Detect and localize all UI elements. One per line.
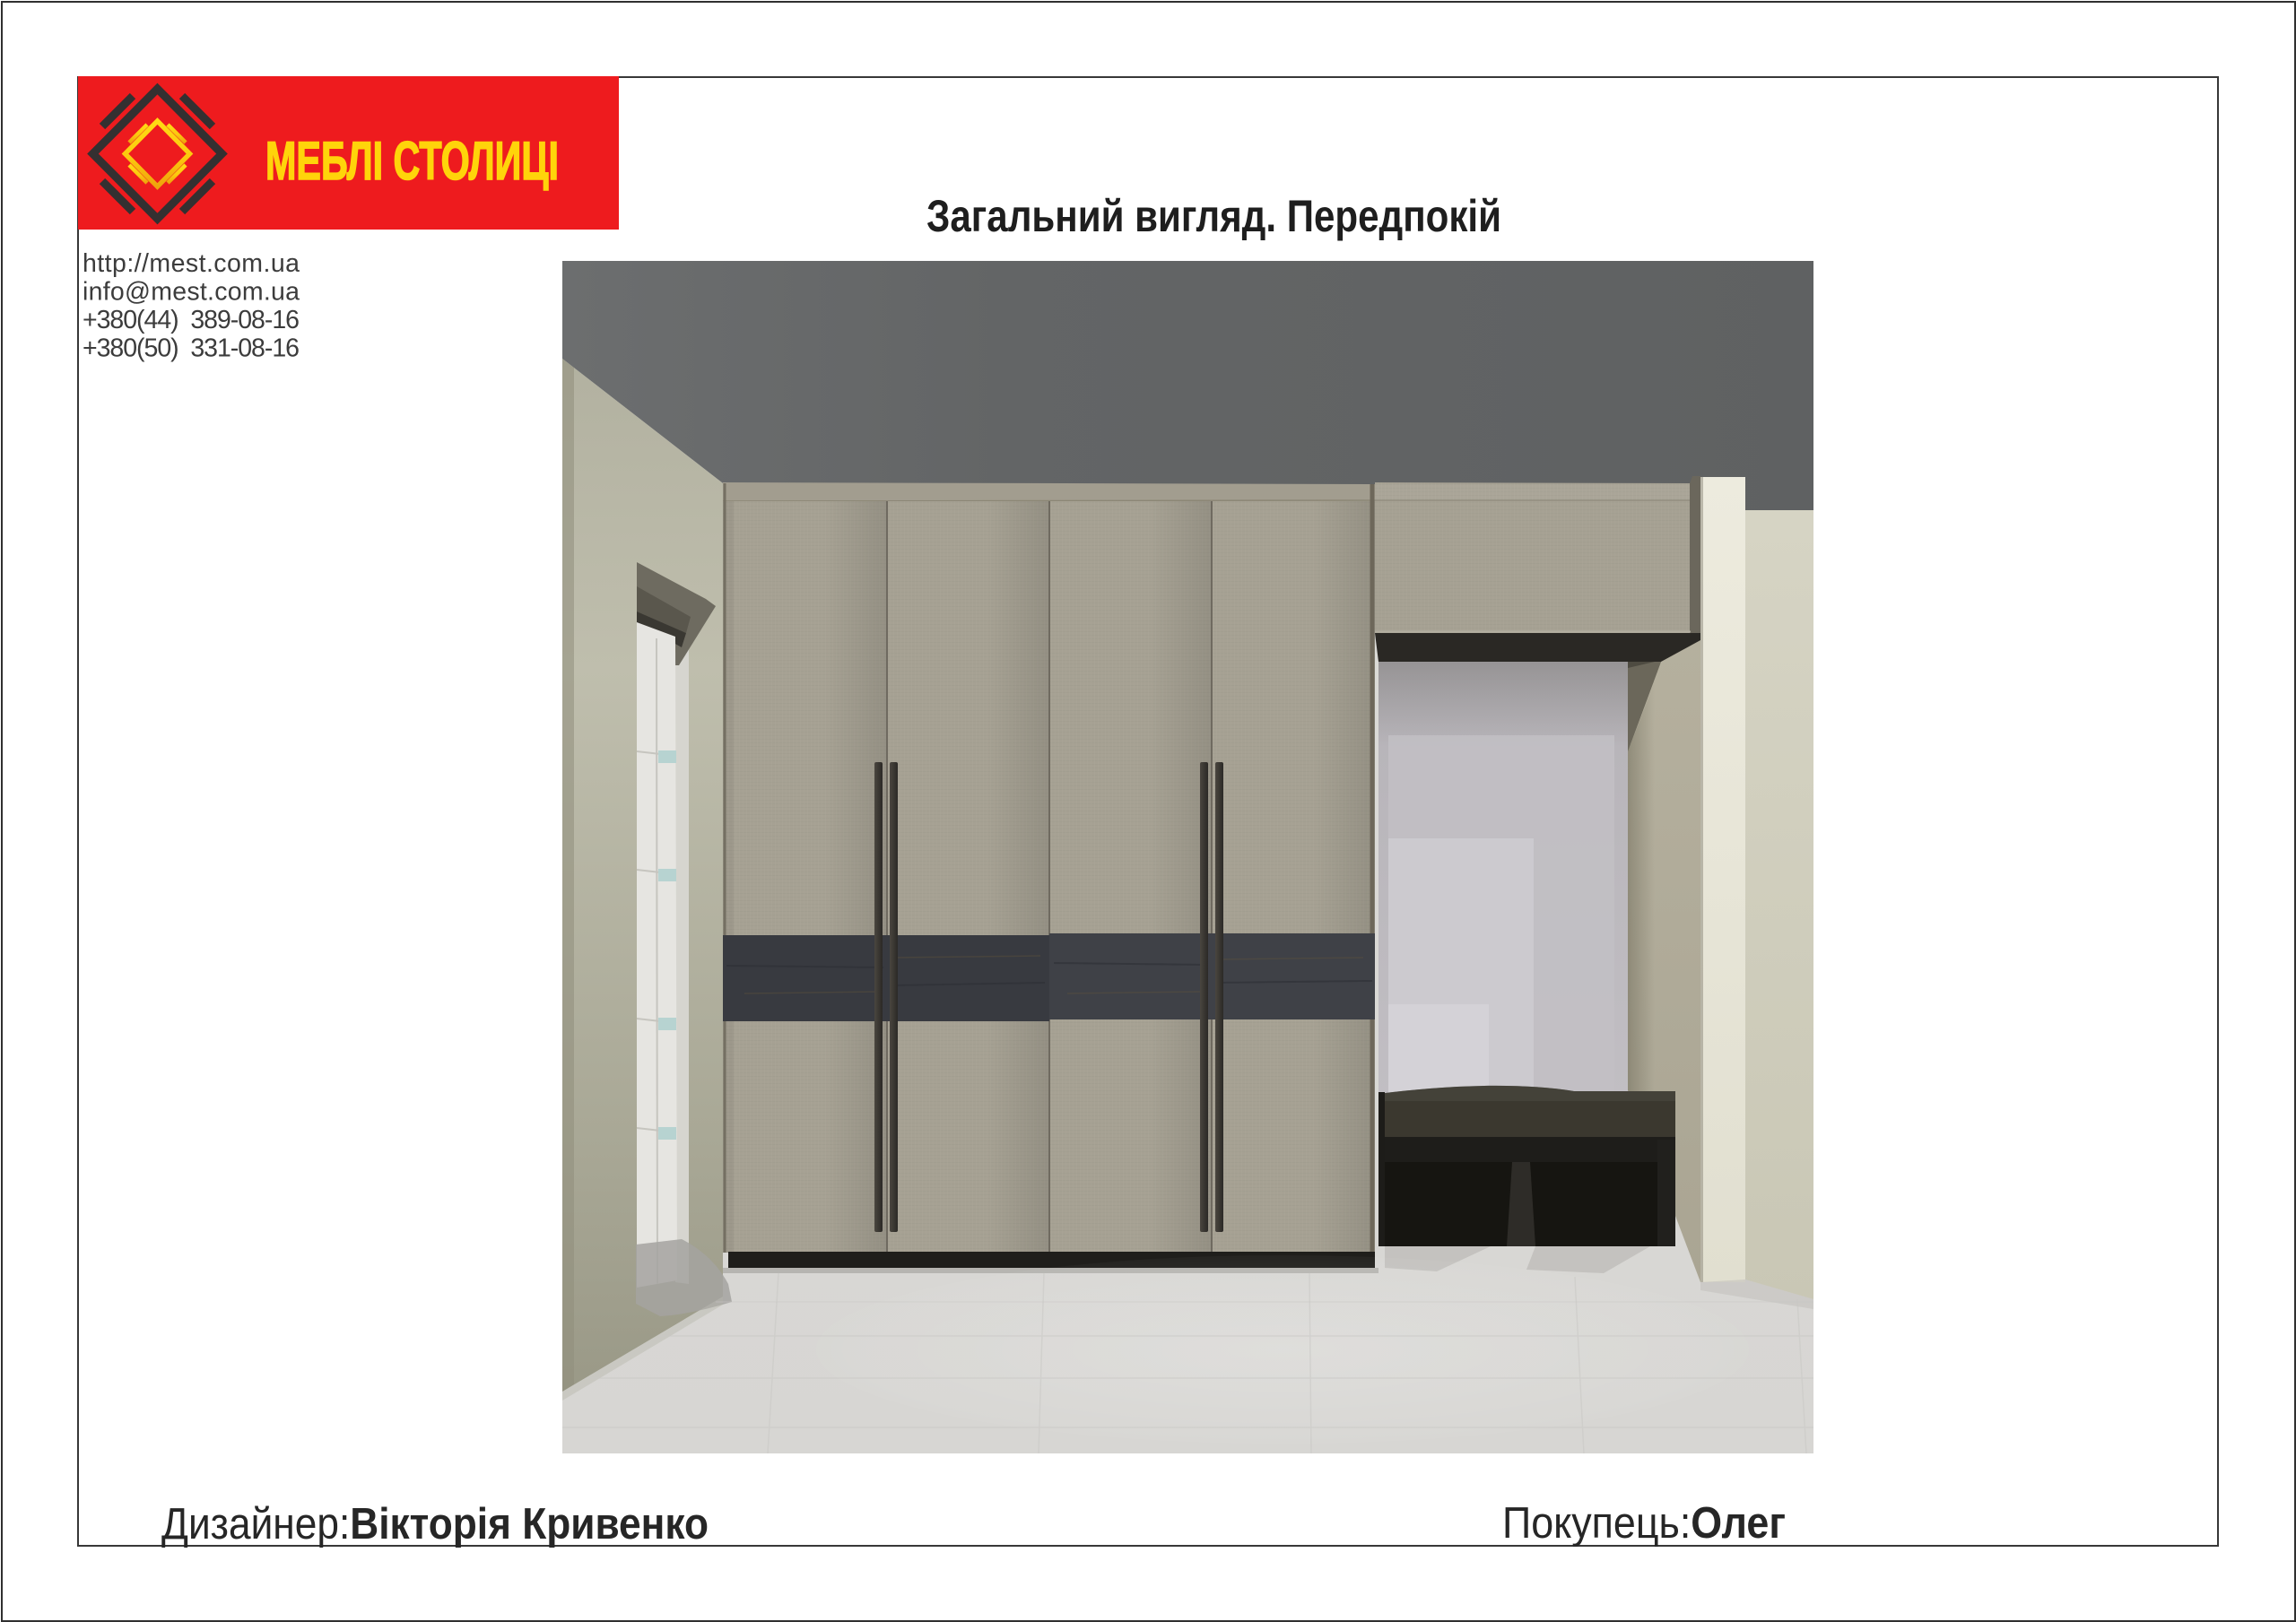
svg-text:Дизайнер:Вікторія Кривенко: Дизайнер:Вікторія Кривенко xyxy=(161,1500,709,1548)
svg-text:Загальний вигляд. Передпокій: Загальний вигляд. Передпокій xyxy=(926,191,1501,241)
svg-text:+380(50) 331-08-16: +380(50) 331-08-16 xyxy=(83,334,300,363)
svg-text:info@mest.com.ua: info@mest.com.ua xyxy=(83,278,300,307)
svg-text:http://mest.com.ua: http://mest.com.ua xyxy=(83,249,300,278)
svg-text:Покупець:Олег: Покупець:Олег xyxy=(1502,1499,1786,1548)
svg-text:+380(44) 389-08-16: +380(44) 389-08-16 xyxy=(83,306,300,334)
svg-text:МЕБЛІ СТОЛИЦІ: МЕБЛІ СТОЛИЦІ xyxy=(265,131,559,191)
